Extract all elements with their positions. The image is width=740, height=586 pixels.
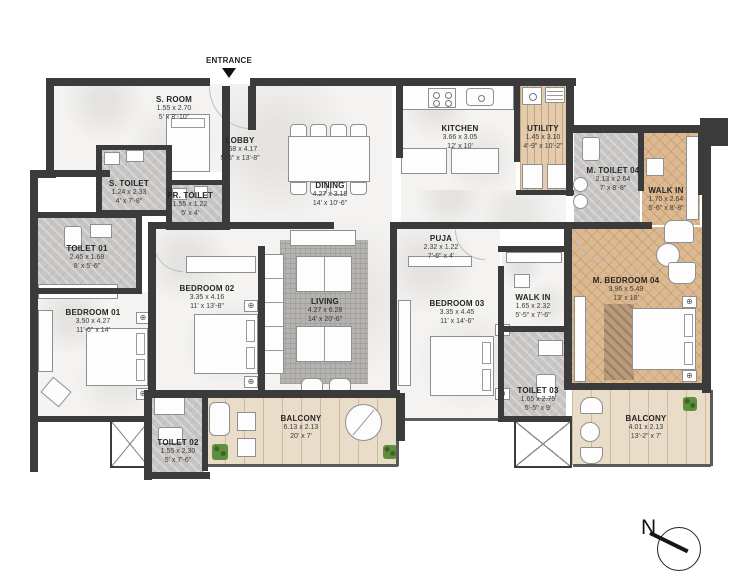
balcony-chair <box>580 447 603 464</box>
room-label-toilet-02: TOILET 021.55 x 2.305' x 7'-6" <box>157 438 198 466</box>
balcony-railing <box>710 390 713 466</box>
closet-box <box>646 158 664 176</box>
balcony-table <box>237 412 256 431</box>
kitchen-counter <box>401 84 514 110</box>
sofa-long <box>264 254 284 374</box>
dining-chair <box>310 124 327 137</box>
wall-segment <box>566 86 573 196</box>
room-label-m-bedroom-04: M. BEDROOM 043.96 x 5.4913' x 18' <box>593 276 660 304</box>
round-dining-table <box>345 404 382 441</box>
dresser <box>574 296 586 382</box>
wall-segment <box>564 383 710 390</box>
entrance-arrow-icon <box>222 68 236 78</box>
room-label-lobby: LOBBY1.68 x 4.175'-6" x 13'-8" <box>220 136 259 164</box>
lounge-chair <box>664 220 694 243</box>
wall-segment <box>46 78 210 86</box>
room-label-kitchen: KITCHEN3.66 x 3.0512' x 10' <box>442 124 479 152</box>
wc-icon <box>104 152 120 165</box>
basin-icon <box>538 340 563 356</box>
balcony-railing <box>573 464 711 467</box>
room-label-walk-in-mid: WALK IN1.65 x 2.325'-5" x 7'-6" <box>515 293 550 321</box>
duct-shaft-right <box>514 420 572 468</box>
balcony-railing <box>206 464 398 467</box>
plot-edge <box>396 440 399 466</box>
wall-segment <box>390 229 397 397</box>
room-label-s-toilet: S. TOILET1.24 x 2.334' x 7'-8" <box>109 179 149 207</box>
entrance-label: ENTRANCE <box>206 56 252 66</box>
wall-segment <box>498 266 504 422</box>
wall-segment <box>152 222 334 229</box>
balcony-table <box>237 438 256 457</box>
wall-segment <box>516 190 574 195</box>
room-label-living: LIVING4.27 x 6.2814' x 20'-6" <box>308 297 343 325</box>
basin-icon <box>90 224 112 238</box>
basin-icon <box>573 194 588 209</box>
sink-icon <box>466 88 494 106</box>
planter <box>683 397 697 411</box>
bed-double <box>86 328 148 386</box>
room-label-pr-toilet: PR. TOILET1.55 x 1.225' x 4' <box>167 191 213 219</box>
balcony-table <box>580 422 600 442</box>
wall-segment <box>46 78 54 176</box>
wall-segment <box>144 390 152 480</box>
wall-segment <box>248 86 256 130</box>
wardrobe <box>186 256 256 273</box>
wall-segment <box>498 416 572 422</box>
desk <box>38 310 53 372</box>
wall-segment <box>30 416 150 422</box>
wall-segment <box>96 145 102 217</box>
dining-table <box>288 136 370 182</box>
room-label-walk-in-top: WALK IN1.70 x 2.645'-6" x 8'-8" <box>648 186 683 214</box>
bed-double <box>632 308 696 370</box>
wall-segment <box>250 78 576 86</box>
closet-shelf <box>506 252 562 263</box>
wall-segment <box>144 472 210 479</box>
wall-segment <box>514 86 520 162</box>
wardrobe <box>398 300 411 386</box>
dining-chair <box>290 124 307 137</box>
floor-plan: ⊕ ⊕ ⊕ ⊕ ⊕ ⊕ ⊕ ⊕ <box>0 0 740 586</box>
dining-chair <box>350 124 367 137</box>
bed-double <box>430 336 494 396</box>
wall-segment <box>148 222 156 398</box>
room-label-s-room: S. ROOM1.55 x 2.705' x 8'-10" <box>156 95 192 123</box>
sofa-two-seater <box>296 326 352 362</box>
closet-box <box>514 274 530 288</box>
side-table-fan-icon: ⊕ <box>244 376 258 388</box>
wall-segment <box>498 326 568 332</box>
washing-machine <box>522 164 543 189</box>
basin-icon <box>126 150 144 162</box>
balcony-chair <box>580 397 603 414</box>
wall-segment <box>30 288 142 294</box>
wall-segment <box>396 86 403 158</box>
wall-segment <box>396 393 405 441</box>
dining-chair <box>290 182 307 195</box>
wall-segment <box>564 229 572 387</box>
lounge-chair <box>668 262 696 284</box>
room-label-bedroom-03: BEDROOM 033.35 x 4.4511' x 14'-6" <box>430 299 485 327</box>
room-label-balcony-main: BALCONY6.13 x 2.1320' x 7' <box>281 414 322 442</box>
room-label-toilet-03: TOILET 031.65 x 2.755'-5" x 9' <box>517 386 558 414</box>
room-label-utility: UTILITY1.45 x 3.104'-9" x 10'-2" <box>523 124 562 152</box>
wall-segment <box>570 125 706 133</box>
side-table-fan-icon: ⊕ <box>682 296 697 308</box>
wall-segment <box>202 395 208 471</box>
stove-icon <box>428 88 456 108</box>
planter <box>383 445 397 459</box>
side-table-fan-icon: ⊕ <box>244 300 258 312</box>
room-label-bedroom-02: BEDROOM 023.35 x 4.1611' x 13'-8" <box>180 284 235 312</box>
balcony-chair <box>209 402 230 436</box>
kitchen-island <box>451 148 499 174</box>
planter <box>212 444 228 460</box>
wall-segment <box>96 145 172 150</box>
wall-segment <box>258 246 265 394</box>
wc-icon <box>582 137 600 161</box>
side-table-fan-icon: ⊕ <box>682 370 697 382</box>
wall-segment <box>498 246 570 252</box>
utility-sink <box>522 87 542 105</box>
room-label-puja: PUJA2.32 x 1.227'-6" x 4' <box>424 234 459 262</box>
wall-segment <box>30 212 142 218</box>
dining-chair <box>330 124 347 137</box>
wall-segment <box>698 133 704 195</box>
bedroom-rug <box>604 304 634 380</box>
bed-double <box>194 314 258 374</box>
sofa-two-seater <box>296 256 352 292</box>
room-label-balcony-right: BALCONY4.01 x 2.1313'-2" x 7' <box>626 414 667 442</box>
wall-segment <box>166 180 228 185</box>
wall-segment <box>390 222 652 229</box>
room-label-dining: DINING4.27 x 3.1814' x 10'-6" <box>313 181 348 209</box>
room-label-toilet-01: TOILET 012.45 x 1.688' x 5'-6" <box>66 244 107 272</box>
floor-corridor <box>401 190 566 224</box>
console-table <box>290 230 356 246</box>
wall-segment <box>152 390 400 398</box>
dining-chair <box>350 182 367 195</box>
room-label-bedroom-01: BEDROOM 013.50 x 4.2711'-6" x 14' <box>66 308 121 336</box>
kitchen-island <box>401 148 447 174</box>
drying-rack <box>545 87 565 103</box>
washing-machine <box>547 164 568 189</box>
room-label-m-toilet-04: M. TOILET 042.13 x 2.647' x 8'-8" <box>587 166 640 194</box>
basin-icon <box>154 397 185 415</box>
wall-segment <box>136 212 142 294</box>
